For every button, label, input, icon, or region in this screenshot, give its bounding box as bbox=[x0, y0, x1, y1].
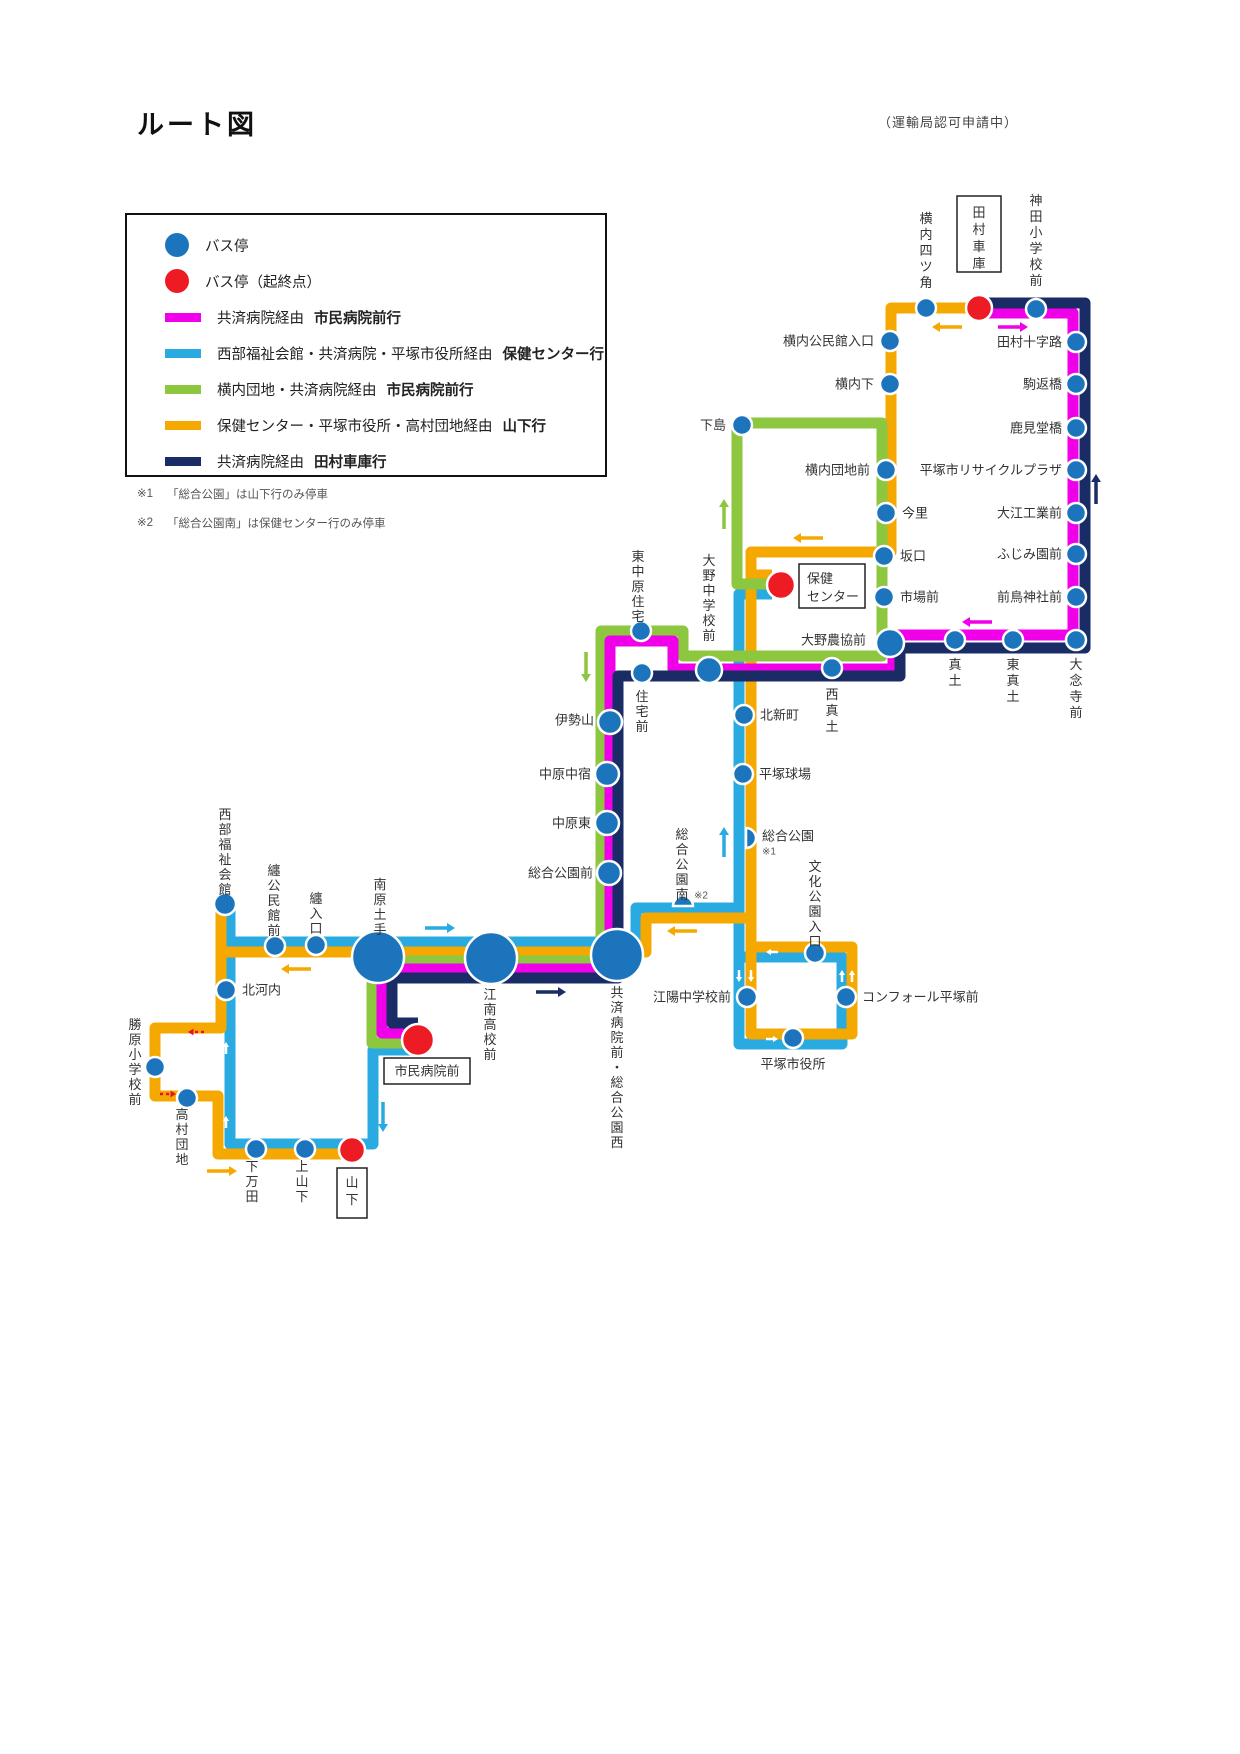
stop-label: 神田小学校前 bbox=[1029, 193, 1042, 288]
legend-item-bus-stop: バス停 bbox=[165, 227, 605, 263]
route-via: 共済病院経由 bbox=[217, 455, 304, 471]
bus-stop bbox=[1066, 503, 1086, 523]
bus-stop bbox=[1066, 544, 1086, 564]
legend-item-route-navy: 共済病院経由田村車庫行 bbox=[165, 443, 605, 479]
bus-stop bbox=[874, 587, 894, 607]
terminal-stop bbox=[966, 295, 992, 321]
bus-stop bbox=[945, 630, 965, 650]
direction-arrow-head bbox=[962, 617, 970, 627]
bus-stop bbox=[732, 415, 752, 435]
terminal-stop-swatch bbox=[165, 269, 189, 293]
stop-label: 大野農協前 bbox=[801, 633, 866, 648]
direction-arrow-head bbox=[378, 1124, 388, 1132]
bus-stop bbox=[880, 331, 900, 351]
bus-stop bbox=[1066, 374, 1086, 394]
bus-stop bbox=[1066, 418, 1086, 438]
bus-stop bbox=[597, 861, 621, 885]
terminal-stop bbox=[402, 1024, 434, 1056]
terminal-stop bbox=[767, 571, 795, 599]
direction-arrow-head bbox=[932, 322, 940, 332]
route-line-swatch bbox=[165, 457, 201, 466]
stop-label: 下万田 bbox=[245, 1159, 258, 1204]
stop-label: 平塚球場 bbox=[759, 767, 811, 782]
bus-stop bbox=[591, 929, 643, 981]
legend-item-route-magenta: 共済病院経由市民病院前行 bbox=[165, 299, 605, 335]
stop-label: 文化公園入口 bbox=[808, 859, 821, 949]
legend-item-label: バス停（起終点） bbox=[205, 271, 321, 292]
bus-stop bbox=[1066, 460, 1086, 480]
direction-arrow-head bbox=[1091, 474, 1101, 482]
stop-label: 西部福祉会館 bbox=[218, 807, 231, 897]
terminal-stop bbox=[339, 1137, 365, 1163]
route-line-swatch bbox=[165, 385, 201, 394]
stop-label: 横内公民館入口 bbox=[783, 334, 874, 349]
bus-stop bbox=[1066, 587, 1086, 607]
stop-label: 鹿見堂橋 bbox=[1010, 421, 1062, 436]
bus-stop bbox=[632, 663, 652, 683]
route-via: 共済病院経由 bbox=[217, 311, 304, 327]
bus-stop bbox=[295, 1139, 315, 1159]
direction-arrow-head bbox=[719, 499, 729, 507]
legend-box: バス停 バス停（起終点） 共済病院経由市民病院前行 西部福祉会館・共済病院・平塚… bbox=[125, 213, 607, 477]
bus-stop bbox=[876, 629, 904, 657]
bus-stop bbox=[1066, 630, 1086, 650]
stop-label: 北河内 bbox=[242, 983, 281, 998]
bus-stop bbox=[465, 932, 517, 984]
legend-item-terminal-stop: バス停（起終点） bbox=[165, 263, 605, 299]
stop-label: ふじみ園前 bbox=[997, 547, 1062, 562]
legend-item-label: バス停 bbox=[205, 235, 249, 256]
bus-stop bbox=[598, 710, 622, 734]
direction-arrow-head bbox=[793, 533, 801, 543]
stop-label: 南原土手 bbox=[373, 877, 386, 937]
stop-label: 前鳥神社前 bbox=[997, 590, 1062, 605]
stop-label: 東真土 bbox=[1006, 657, 1019, 704]
direction-arrow-head bbox=[447, 923, 455, 933]
stop-label: 江南高校前 bbox=[483, 987, 496, 1062]
stop-label: 市場前 bbox=[900, 590, 939, 605]
stop-label: 坂口 bbox=[900, 549, 926, 564]
bus-stop bbox=[631, 621, 651, 641]
footnotes: ※1 「総合公園」は山下行のみ停車 ※2 「総合公園南」は保健センター行のみ停車 bbox=[137, 486, 386, 544]
boxed-stop-label: 市民病院前 bbox=[394, 1064, 459, 1079]
bus-stop-swatch bbox=[165, 233, 189, 257]
stop-label: 大江工業前 bbox=[997, 506, 1062, 521]
stop-label: 横内四ツ角 bbox=[919, 211, 932, 290]
stop-label: ※2 bbox=[694, 891, 708, 902]
stop-label: 大野中学校前 bbox=[702, 553, 715, 643]
bus-stop-half bbox=[746, 828, 756, 848]
stop-label: 駒返橋 bbox=[1023, 377, 1062, 392]
stop-label: 横内下 bbox=[835, 377, 874, 392]
stop-label: 共済病院前・総合公園西 bbox=[610, 985, 623, 1150]
stop-label: 高村団地 bbox=[175, 1107, 188, 1167]
stop-label: 中原東 bbox=[552, 816, 591, 831]
stop-label: 住宅前 bbox=[635, 689, 648, 734]
bus-stop bbox=[876, 460, 896, 480]
direction-arrow-head bbox=[558, 987, 566, 997]
legend-item-label: 保健センター・平塚市役所・高村団地経由山下行 bbox=[217, 415, 546, 436]
footnote-mark: ※2 bbox=[137, 515, 153, 531]
stop-label: 大念寺前 bbox=[1069, 657, 1082, 720]
legend-item-label: 共済病院経由市民病院前行 bbox=[217, 307, 401, 328]
stop-label: 纏公民館前 bbox=[267, 863, 280, 938]
stop-label: ※1 bbox=[762, 847, 776, 858]
direction-arrow-head bbox=[667, 926, 675, 936]
direction-arrow-head bbox=[581, 674, 591, 682]
direction-arrow-head bbox=[229, 1166, 237, 1176]
legend-item-route-green: 横内団地・共済病院経由市民病院前行 bbox=[165, 371, 605, 407]
stop-label: 下島 bbox=[700, 418, 726, 433]
bus-stop bbox=[595, 762, 619, 786]
bus-stop bbox=[1003, 630, 1023, 650]
bus-stop bbox=[783, 1028, 803, 1048]
stop-label: 上山下 bbox=[295, 1159, 308, 1204]
route-line-swatch bbox=[165, 421, 201, 430]
stop-label: 今里 bbox=[902, 506, 928, 521]
legend-item-label: 西部福祉会館・共済病院・平塚市役所経由保健センター行 bbox=[217, 343, 604, 364]
route-via: 横内団地・共済病院経由 bbox=[217, 383, 377, 399]
stop-label: 真土 bbox=[948, 657, 961, 688]
stop-label: 横内団地前 bbox=[805, 463, 870, 478]
bus-stop bbox=[265, 936, 285, 956]
direction-arrow-head bbox=[1020, 322, 1028, 332]
bus-stop bbox=[874, 546, 894, 566]
stop-label: 纏入口 bbox=[309, 891, 322, 936]
route-line-swatch bbox=[165, 349, 201, 358]
bus-stop bbox=[822, 658, 842, 678]
route-destination: 市民病院前行 bbox=[387, 383, 474, 399]
bus-stop bbox=[737, 987, 757, 1007]
footnote-text: 「総合公園」は山下行のみ停車 bbox=[167, 486, 328, 502]
footnote-mark: ※1 bbox=[137, 486, 153, 502]
footnote-text: 「総合公園南」は保健センター行のみ停車 bbox=[167, 515, 386, 531]
legend-item-route-yellow: 保健センター・平塚市役所・高村団地経由山下行 bbox=[165, 407, 605, 443]
bus-stop bbox=[836, 987, 856, 1007]
legend-item-label: 横内団地・共済病院経由市民病院前行 bbox=[217, 379, 474, 400]
direction-arrow-head bbox=[719, 827, 729, 835]
bus-stop bbox=[876, 503, 896, 523]
legend-item-label: 共済病院経由田村車庫行 bbox=[217, 451, 387, 472]
stop-label: 田村十字路 bbox=[997, 335, 1062, 350]
route-destination: 田村車庫行 bbox=[314, 455, 387, 471]
bus-stop bbox=[880, 374, 900, 394]
stop-label: 北新町 bbox=[760, 708, 799, 723]
route-destination: 市民病院前行 bbox=[314, 311, 401, 327]
stop-label: 総合公園南 bbox=[675, 827, 688, 902]
bus-stop bbox=[734, 705, 754, 725]
stop-label: 東中原住宅 bbox=[631, 549, 644, 624]
bus-stop bbox=[246, 1139, 266, 1159]
bus-stop bbox=[595, 811, 619, 835]
stop-label: 総合公園前 bbox=[528, 866, 593, 881]
bus-stop bbox=[306, 935, 326, 955]
stop-label: 勝原小学校前 bbox=[128, 1017, 141, 1107]
bus-stop bbox=[177, 1088, 197, 1108]
bus-stop bbox=[916, 298, 936, 318]
route-via: 保健センター・平塚市役所・高村団地経由 bbox=[217, 419, 493, 435]
bus-stop bbox=[216, 980, 236, 1000]
bus-stop bbox=[352, 931, 404, 983]
bus-stop bbox=[1026, 299, 1046, 319]
footnote-1: ※1 「総合公園」は山下行のみ停車 bbox=[137, 486, 386, 502]
stop-label: コンフォール平塚前 bbox=[862, 990, 979, 1005]
bus-stop bbox=[145, 1057, 165, 1077]
stop-label: 江陽中学校前 bbox=[653, 990, 731, 1005]
legend-item-route-cyan: 西部福祉会館・共済病院・平塚市役所経由保健センター行 bbox=[165, 335, 605, 371]
stop-label: 平塚市役所 bbox=[760, 1057, 825, 1072]
bus-stop bbox=[1066, 332, 1086, 352]
route-via: 西部福祉会館・共済病院・平塚市役所経由 bbox=[217, 347, 493, 363]
bus-stop bbox=[733, 764, 753, 784]
stop-label: 伊勢山 bbox=[555, 713, 594, 728]
stop-label: 平塚市リサイクルプラザ bbox=[920, 463, 1062, 478]
route-destination: 山下行 bbox=[503, 419, 547, 435]
bus-stop bbox=[696, 657, 722, 683]
route-line-swatch bbox=[165, 313, 201, 322]
stop-label: 中原中宿 bbox=[539, 767, 591, 782]
route-destination: 保健センター行 bbox=[503, 347, 605, 363]
footnote-2: ※2 「総合公園南」は保健センター行のみ停車 bbox=[137, 515, 386, 531]
stop-label: 総合公園 bbox=[762, 829, 814, 844]
stop-label: 西真土 bbox=[825, 687, 838, 734]
direction-arrow-head bbox=[281, 964, 289, 974]
